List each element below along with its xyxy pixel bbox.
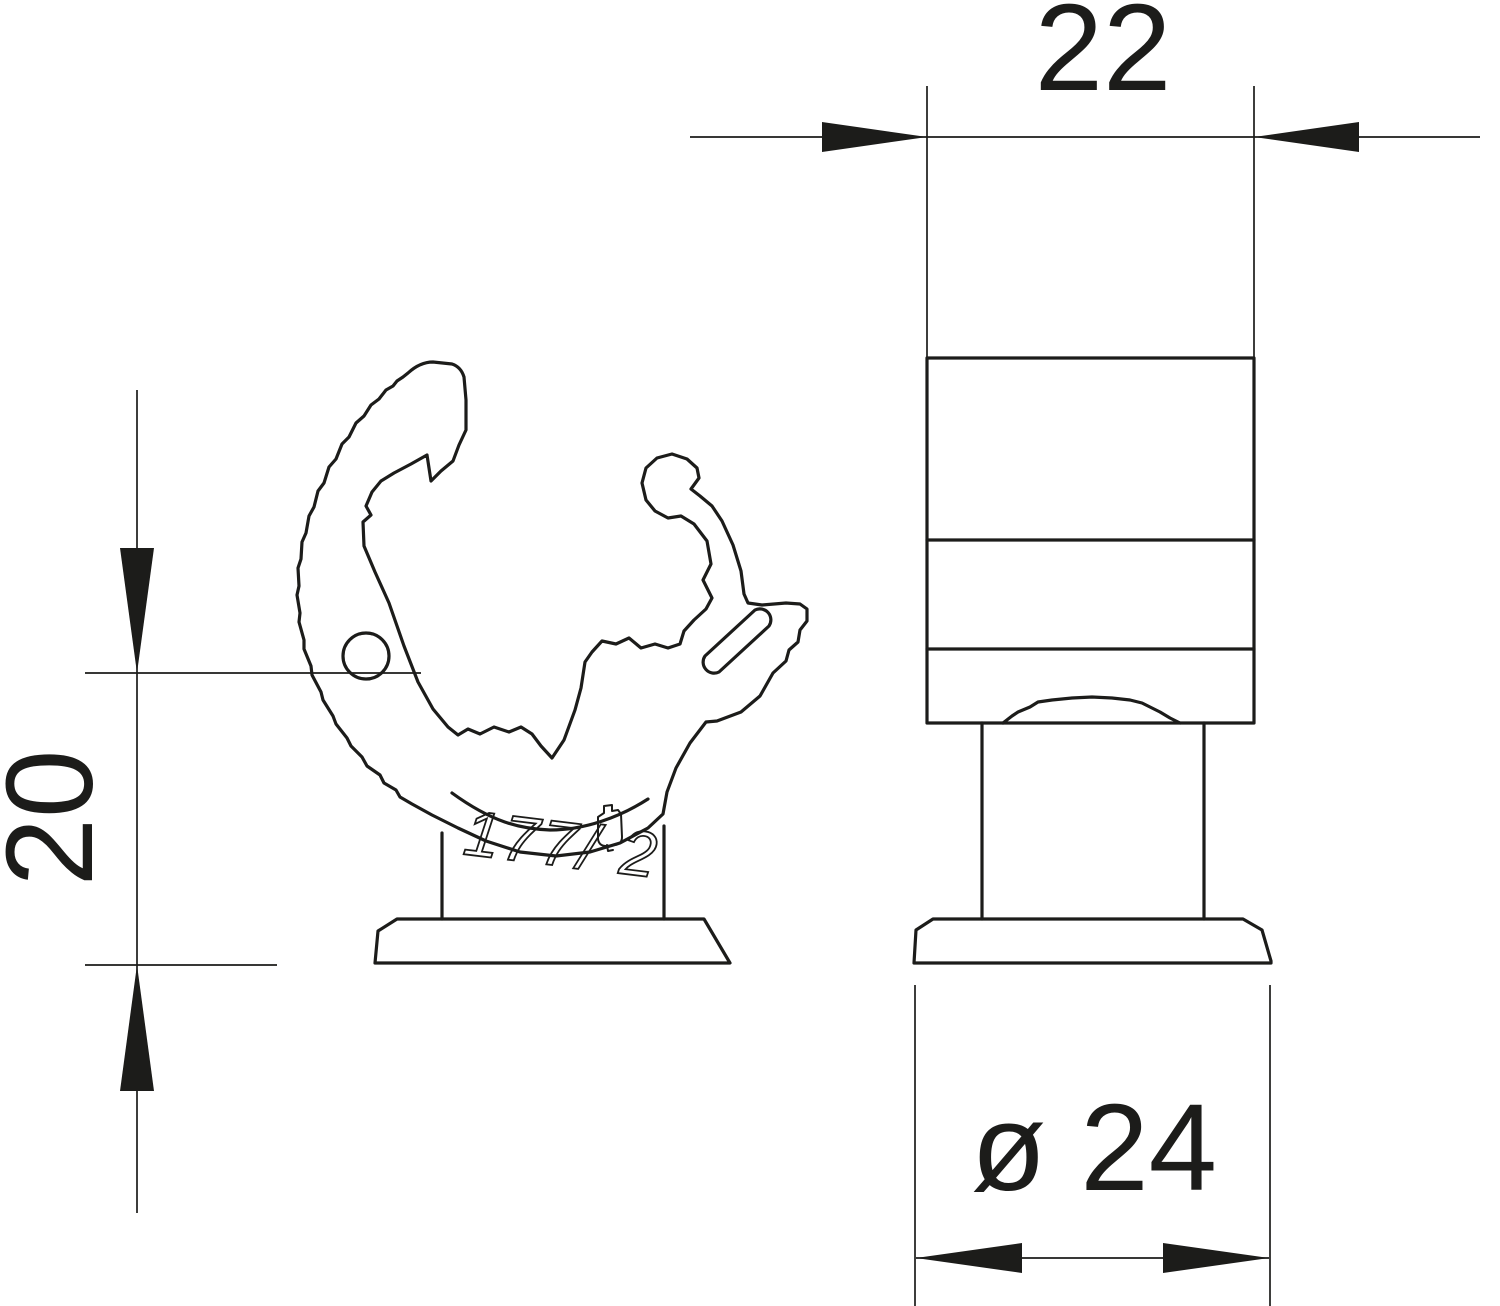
diameter-dimension-label: ø 24: [971, 1080, 1217, 1217]
engraving-text: 177/ 2: [460, 796, 663, 891]
width-arrow-right: [1254, 122, 1359, 152]
dimension-width-22: 22: [690, 0, 1480, 358]
technical-drawing-canvas: 177/ 2 22 20: [0, 0, 1500, 1306]
clamp-outline: [297, 362, 807, 856]
diameter-arrow-right: [1163, 1243, 1269, 1273]
front-view: 177/ 2: [297, 362, 807, 963]
front-base: [375, 919, 730, 963]
height-dimension-label: 20: [0, 750, 119, 887]
height-arrow-up: [120, 965, 154, 1091]
dimension-diameter-24: ø 24: [915, 985, 1270, 1306]
side-base: [914, 919, 1271, 963]
clamp-hole: [343, 633, 389, 679]
height-arrow-down: [120, 548, 154, 673]
side-band-dome: [1003, 697, 1180, 723]
diameter-arrow-left: [916, 1243, 1022, 1273]
lug-slot: [703, 609, 771, 673]
width-arrow-left: [822, 122, 927, 152]
dimension-height-20: 20: [0, 390, 421, 1213]
pipe-clamp-dimension-drawing: 177/ 2 22 20: [0, 0, 1500, 1306]
width-dimension-label: 22: [1035, 0, 1172, 117]
side-view: [914, 358, 1271, 963]
